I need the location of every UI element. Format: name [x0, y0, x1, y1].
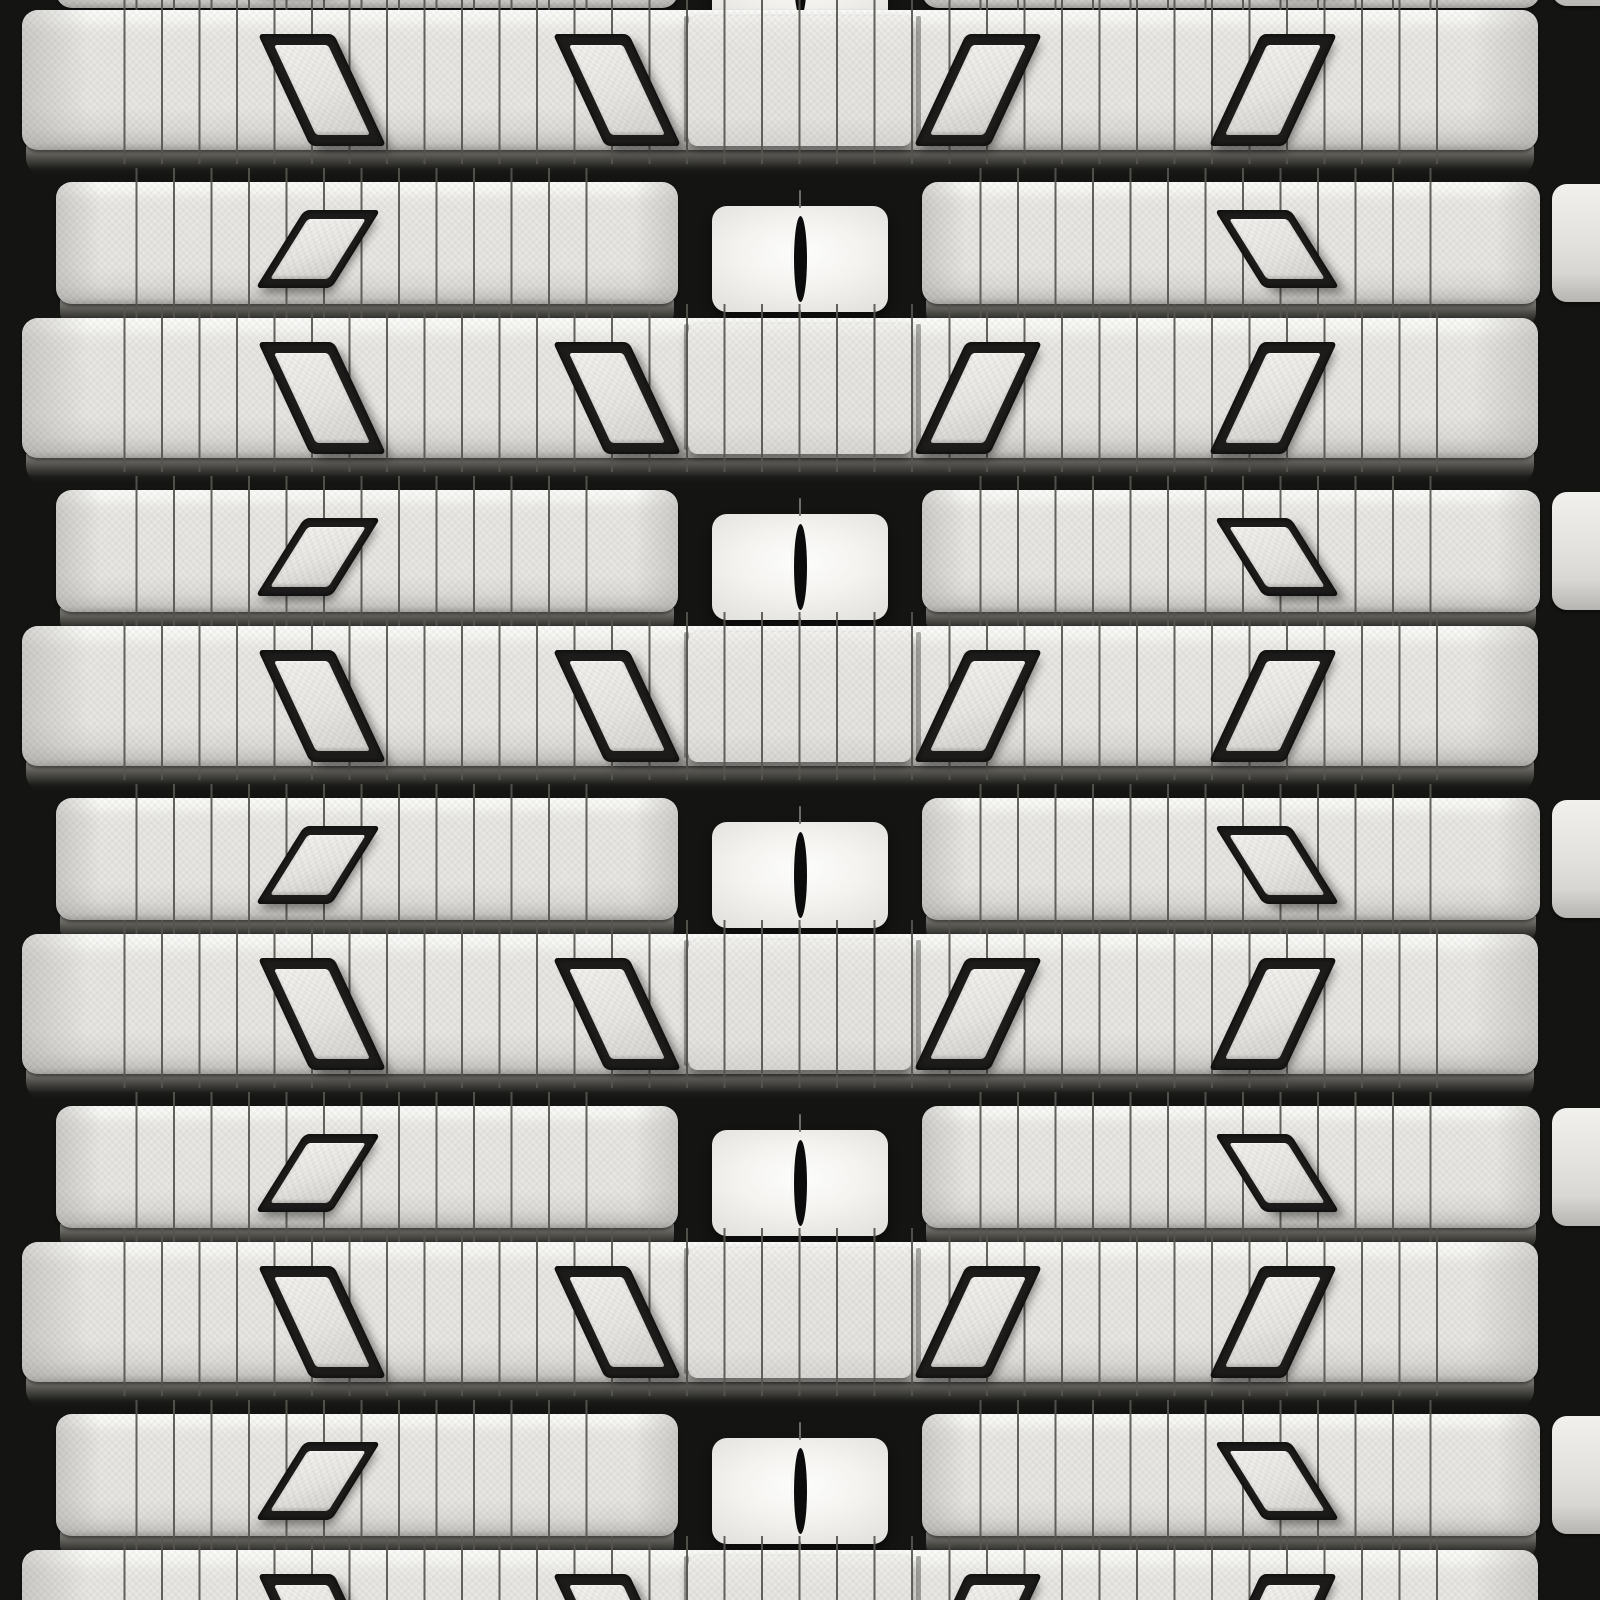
center-seam	[916, 324, 921, 450]
drive-lug-block	[712, 1438, 888, 1544]
bar-shadow-wall	[26, 1378, 1534, 1408]
tread-bar-segment	[56, 0, 678, 8]
bar-end-cap	[56, 1106, 100, 1228]
edge-cap-block	[1552, 492, 1600, 610]
tread-bar-segment	[56, 182, 678, 304]
bar-end-cap	[1496, 182, 1540, 304]
center-bridge-pad	[688, 16, 912, 146]
bar-end-cap	[922, 798, 966, 920]
bar-end-cap	[1496, 1414, 1540, 1536]
tread-bar-segment	[56, 798, 678, 920]
edge-cap-block	[1552, 800, 1600, 918]
tread-bar-segment	[922, 490, 1540, 612]
center-bridge-pad	[688, 632, 912, 762]
drive-lug-block	[712, 206, 888, 312]
slit-highlight	[791, 527, 798, 606]
bar-end-cap	[22, 626, 88, 766]
bar-end-cap	[922, 490, 966, 612]
drive-lug-block	[712, 822, 888, 928]
slit-wire-tip	[799, 1114, 801, 1132]
tread-bar-segment	[56, 490, 678, 612]
tread-bar-segment	[922, 798, 1540, 920]
rubber-track-photo	[0, 0, 1600, 1600]
sprocket-slit	[794, 524, 807, 610]
bar-end-cap	[22, 1242, 88, 1382]
tread-bar-segment	[922, 182, 1540, 304]
bar-end-cap	[922, 1414, 966, 1536]
slit-highlight	[791, 219, 798, 298]
bar-end-cap	[634, 1106, 678, 1228]
center-bridge-pad	[688, 1556, 912, 1600]
sprocket-slit	[794, 832, 807, 918]
bar-end-cap	[1496, 798, 1540, 920]
bar-end-cap	[922, 1106, 966, 1228]
bar-end-cap	[634, 0, 678, 8]
center-seam	[916, 1556, 921, 1600]
edge-cap-block	[1552, 1416, 1600, 1534]
center-bridge-pad	[688, 324, 912, 454]
bar-end-cap	[22, 318, 88, 458]
tread-bar-segment	[922, 0, 1540, 8]
bar-end-cap	[634, 1414, 678, 1536]
bar-end-cap	[56, 0, 100, 8]
bar-shadow-wall	[26, 762, 1534, 792]
center-seam	[916, 940, 921, 1066]
center-bridge-pad	[688, 940, 912, 1070]
bar-end-cap	[56, 798, 100, 920]
bar-end-cap	[1496, 0, 1540, 8]
bar-end-cap	[56, 182, 100, 304]
edge-cap-block	[1552, 0, 1600, 6]
bar-end-cap	[56, 1414, 100, 1536]
sprocket-slit	[794, 216, 807, 302]
sprocket-slit	[794, 1448, 807, 1534]
bar-end-cap	[634, 798, 678, 920]
bar-end-cap	[1472, 626, 1538, 766]
center-seam	[916, 1248, 921, 1374]
slit-wire-tip	[799, 1422, 801, 1440]
bar-end-cap	[1496, 1106, 1540, 1228]
bar-end-cap	[22, 1550, 88, 1600]
bar-end-cap	[922, 0, 966, 8]
edge-cap-block	[1552, 184, 1600, 302]
bar-end-cap	[56, 490, 100, 612]
tread-bar-segment	[56, 1106, 678, 1228]
bar-shadow-wall	[26, 146, 1534, 176]
slit-highlight	[791, 1451, 798, 1530]
bar-end-cap	[22, 934, 88, 1074]
drive-lug-block	[712, 1130, 888, 1236]
center-seam	[916, 632, 921, 758]
bar-shadow-wall	[26, 1070, 1534, 1100]
bar-end-cap	[22, 10, 88, 150]
drive-lug-block	[712, 514, 888, 620]
tread-bar-segment	[56, 1414, 678, 1536]
slit-wire-tip	[799, 498, 801, 516]
slit-wire-tip	[799, 806, 801, 824]
bar-end-cap	[922, 182, 966, 304]
slit-highlight	[791, 1143, 798, 1222]
tread-bar-segment	[922, 1106, 1540, 1228]
slit-wire-tip	[799, 190, 801, 208]
center-bridge-pad	[688, 1248, 912, 1378]
bar-end-cap	[634, 182, 678, 304]
bar-end-cap	[1472, 1242, 1538, 1382]
bar-end-cap	[1472, 10, 1538, 150]
bar-end-cap	[1472, 318, 1538, 458]
sprocket-slit	[794, 1140, 807, 1226]
bar-end-cap	[1496, 490, 1540, 612]
slit-highlight	[791, 835, 798, 914]
tread-bar-segment	[922, 1414, 1540, 1536]
bar-end-cap	[1472, 1550, 1538, 1600]
bar-shadow-wall	[26, 454, 1534, 484]
edge-cap-block	[1552, 1108, 1600, 1226]
bar-end-cap	[1472, 934, 1538, 1074]
bar-end-cap	[634, 490, 678, 612]
center-seam	[916, 16, 921, 142]
